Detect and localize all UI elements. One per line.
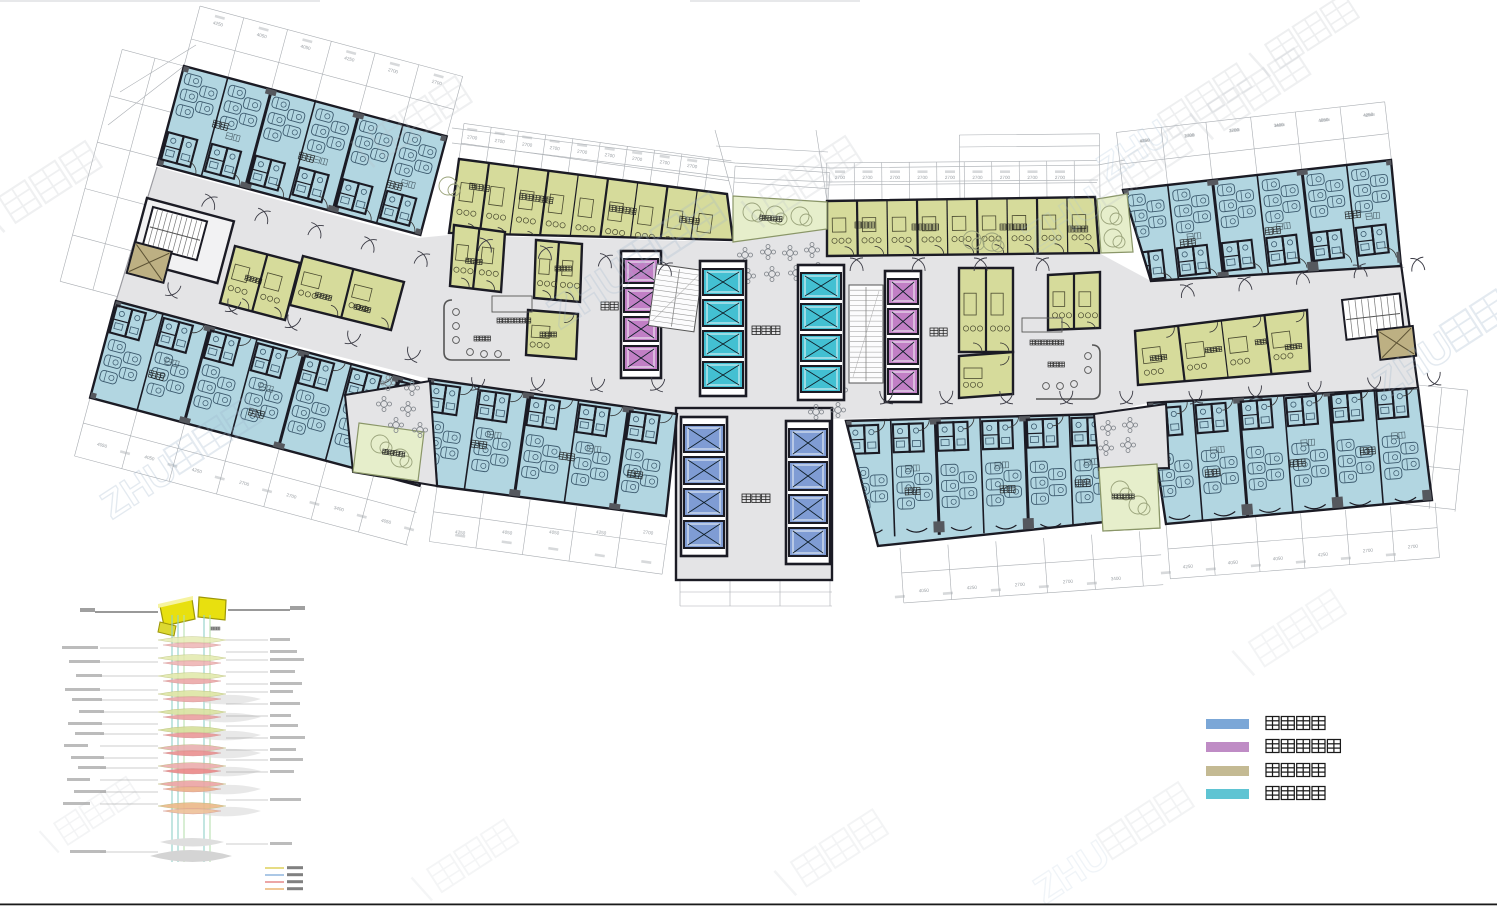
- svg-text:2700: 2700: [1363, 548, 1374, 554]
- svg-text:2700: 2700: [1055, 175, 1066, 180]
- svg-text:4050: 4050: [1228, 560, 1239, 566]
- svg-text:2700: 2700: [1000, 175, 1011, 180]
- svg-text:2700: 2700: [1063, 579, 1074, 585]
- svg-text:2700: 2700: [1027, 175, 1038, 180]
- svg-text:2700: 2700: [862, 175, 873, 180]
- svg-text:2700: 2700: [945, 175, 956, 180]
- svg-text:2700: 2700: [917, 175, 928, 180]
- svg-text:4250: 4250: [1318, 552, 1329, 558]
- svg-text:2700: 2700: [890, 175, 901, 180]
- svg-text:2700: 2700: [972, 175, 983, 180]
- svg-text:4250: 4250: [1183, 564, 1194, 570]
- svg-text:2700: 2700: [1408, 544, 1419, 550]
- svg-text:3400: 3400: [1111, 576, 1122, 582]
- svg-text:4050: 4050: [1273, 556, 1284, 562]
- svg-text:4250: 4250: [967, 585, 978, 591]
- svg-text:4050: 4050: [919, 588, 930, 594]
- svg-text:2700: 2700: [1015, 582, 1026, 588]
